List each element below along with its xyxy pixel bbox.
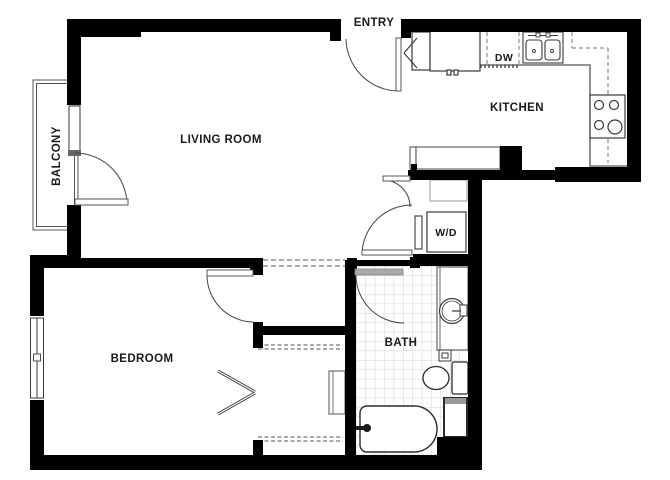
floor-plan: ENTRY LIVING ROOM KITCHEN DW BALCONY W/D…: [0, 0, 670, 480]
bath-door-leaf: [355, 269, 403, 275]
dishwasher-label: DW: [495, 52, 513, 64]
kitchen-sink: [523, 32, 563, 63]
kitchen-label: KITCHEN: [490, 102, 544, 114]
hall-door-leaf: [362, 250, 412, 255]
refrigerator: [412, 31, 480, 75]
laundry-cabinet: [430, 180, 467, 201]
living-room-label: LIVING ROOM: [180, 134, 262, 146]
bedroom-window: [29, 316, 45, 400]
laundry-door-leaf: [415, 216, 422, 249]
bath-vanity: [437, 267, 468, 350]
hall-door: [362, 205, 412, 255]
entry-door-leaf: [396, 38, 401, 91]
bathtub: [355, 406, 437, 452]
cased-opening-dashes: [263, 260, 345, 266]
toilet-tank: [452, 362, 468, 394]
entry-door: [346, 38, 401, 91]
closet-bifold-doors: [218, 371, 255, 414]
kitchen-door-leaf: [383, 176, 410, 181]
bedroom-door: [207, 270, 253, 322]
bedroom-door-leaf: [207, 270, 253, 276]
bedroom-label: BEDROOM: [111, 353, 174, 365]
linen-cabinet: [444, 398, 467, 437]
floor-plan-canvas: ENTRY LIVING ROOM KITCHEN DW BALCONY W/D…: [0, 0, 670, 480]
stove: [590, 95, 625, 138]
kitchen-hall-door: [383, 176, 410, 207]
balcony-door: [68, 106, 128, 205]
peninsula-counter: [410, 147, 500, 169]
closet-shelf-unit: [329, 371, 345, 414]
balcony-label: BALCONY: [51, 126, 63, 186]
bath-label: BATH: [385, 337, 418, 349]
toilet-bowl: [423, 367, 449, 390]
entry-label: ENTRY: [354, 17, 395, 29]
bath-faucet: [460, 305, 467, 316]
balcony-door-leaf: [75, 199, 128, 205]
washer-dryer-label: W/D: [435, 227, 457, 239]
tub-faucet: [363, 424, 371, 432]
vanity-side-box: [439, 350, 451, 361]
